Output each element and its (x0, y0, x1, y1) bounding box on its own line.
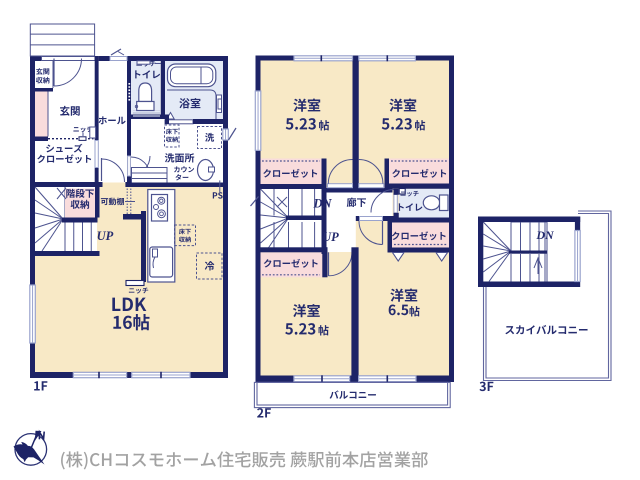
svg-text:UP: UP (97, 229, 114, 243)
svg-text:DN: DN (535, 228, 555, 242)
svg-text:UP: UP (322, 230, 339, 244)
svg-text:DN: DN (312, 197, 332, 211)
